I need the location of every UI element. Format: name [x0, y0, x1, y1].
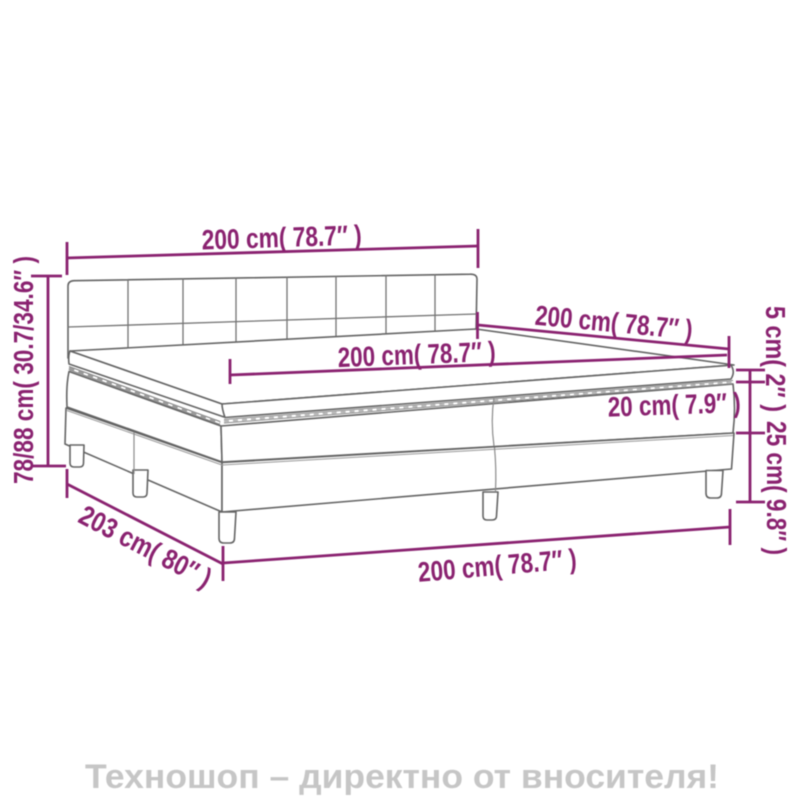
- svg-text:5 cm( 2″ ): 5 cm( 2″ ): [760, 306, 791, 412]
- svg-text:200 cm( 78.7″ ): 200 cm( 78.7″ ): [337, 336, 496, 373]
- svg-text:25 cm( 9.8″ ): 25 cm( 9.8″ ): [761, 421, 792, 555]
- svg-text:78/88 cm( 30.7/34.6″ ): 78/88 cm( 30.7/34.6″ ): [8, 256, 39, 484]
- svg-text:20 cm( 7.9″ ): 20 cm( 7.9″ ): [607, 387, 741, 423]
- svg-text:200 cm( 78.7″ ): 200 cm( 78.7″ ): [201, 219, 362, 255]
- svg-text:Техношоп – директно от вносите: Техношоп – директно от вносителя!: [85, 758, 719, 796]
